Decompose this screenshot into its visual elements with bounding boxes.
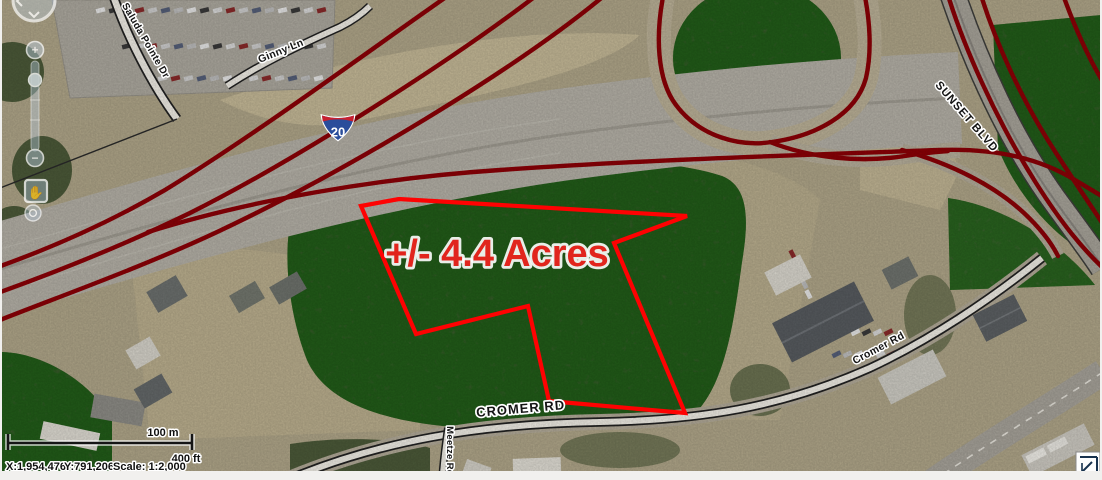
aerial-imagery: 20 +/- 4.4 Acres Saluda Pointe Dr Ginny … xyxy=(0,0,1102,480)
hand-icon: ✋ xyxy=(28,185,44,200)
scale-metric-label: 100 m xyxy=(147,427,178,439)
frame-bottom xyxy=(0,471,1102,480)
globe-button[interactable] xyxy=(25,205,41,221)
zoom-out-label: − xyxy=(31,151,38,165)
zoom-slider-handle[interactable] xyxy=(29,74,42,87)
zoom-in-label: + xyxy=(31,43,38,57)
gis-map-window: 20 +/- 4.4 Acres Saluda Pointe Dr Ginny … xyxy=(0,0,1102,480)
frame-left xyxy=(0,0,2,480)
road-label-meetze-rd: Meetze Rd xyxy=(444,426,455,476)
map-canvas[interactable]: 20 +/- 4.4 Acres Saluda Pointe Dr Ginny … xyxy=(0,0,1102,480)
interstate-number: 20 xyxy=(331,125,345,140)
parcel-area-label: +/- 4.4 Acres xyxy=(385,233,609,275)
